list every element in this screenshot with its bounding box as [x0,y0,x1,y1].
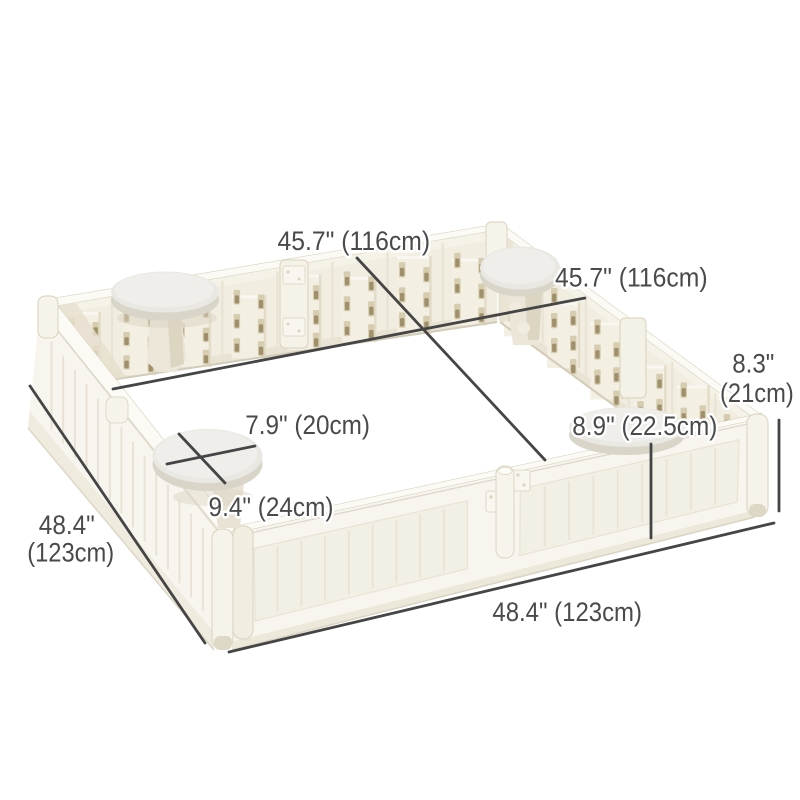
svg-text:8.9" (22.5cm): 8.9" (22.5cm) [572,411,717,441]
svg-text:(21cm): (21cm) [720,378,794,408]
svg-text:48.4" (123cm): 48.4" (123cm) [492,597,642,627]
svg-text:8.3": 8.3" [732,348,774,378]
svg-text:45.7" (116cm): 45.7" (116cm) [278,226,431,256]
svg-text:(123cm): (123cm) [27,538,114,568]
svg-text:9.4" (24cm): 9.4" (24cm) [209,492,334,522]
svg-text:48.4": 48.4" [39,510,95,540]
svg-text:45.7" (116cm): 45.7" (116cm) [555,263,708,293]
svg-text:7.9" (20cm): 7.9" (20cm) [245,410,370,440]
